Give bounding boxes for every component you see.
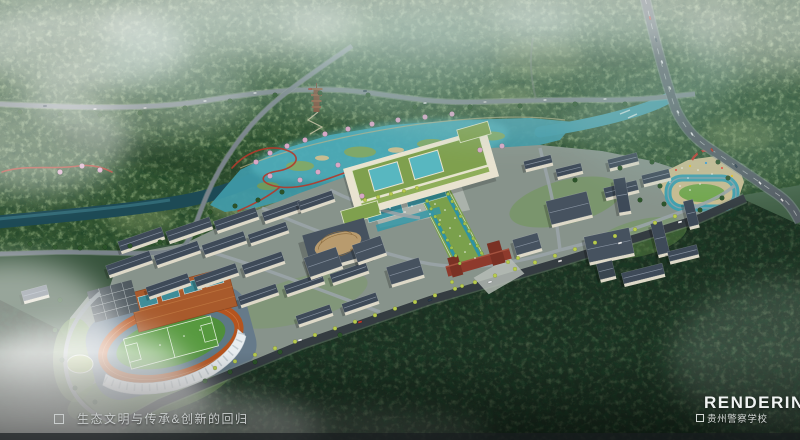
watermark-subtitle: 贵州警察学校 [707,411,768,425]
watermark-title: RENDERING [704,393,800,413]
campus-aerial-rendering: 生态文明与传承&创新的回归 RENDERING 贵州警察学校 [0,0,800,440]
slogan-caption: 生态文明与传承&创新的回归 [54,410,249,427]
watermark-subtitle-row: 贵州警察学校 [696,411,768,425]
slogan-text: 生态文明与传承&创新的回归 [77,410,249,427]
square-outline-icon [696,414,704,422]
square-outline-icon [54,414,64,424]
rendering-scene [0,0,800,440]
